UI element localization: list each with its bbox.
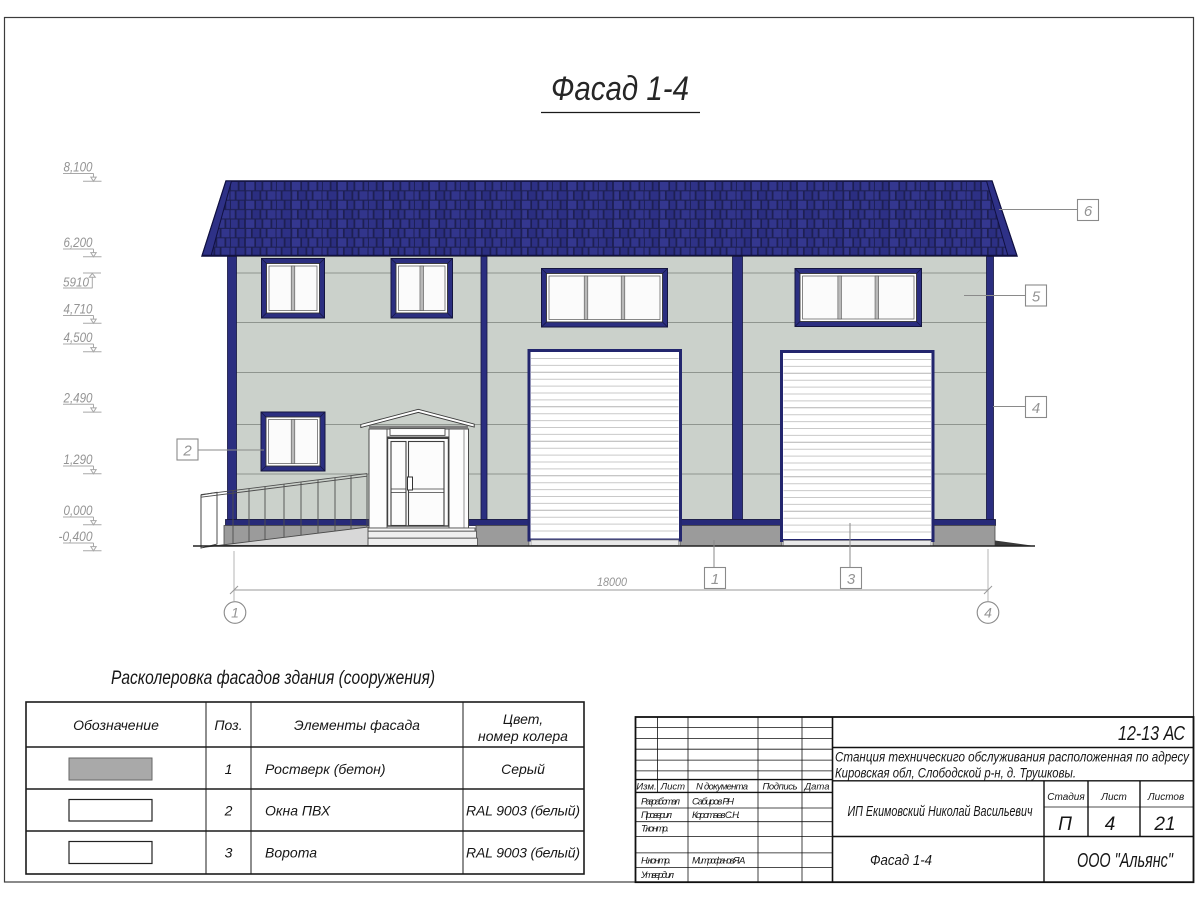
svg-text:Фасад 1-4: Фасад 1-4 bbox=[870, 853, 932, 869]
svg-text:0,000: 0,000 bbox=[64, 503, 93, 518]
svg-text:4: 4 bbox=[1032, 400, 1040, 417]
svg-text:Разработал: Разработал bbox=[641, 797, 681, 808]
svg-text:8,100: 8,100 bbox=[64, 160, 93, 175]
svg-text:номер колера: номер колера bbox=[478, 728, 568, 744]
svg-text:1: 1 bbox=[231, 605, 239, 621]
svg-text:2,490: 2,490 bbox=[63, 390, 93, 405]
svg-text:5: 5 bbox=[1032, 289, 1041, 306]
svg-text:Листов: Листов bbox=[1147, 792, 1184, 803]
svg-text:Подпись: Подпись bbox=[763, 782, 798, 793]
svg-text:5910: 5910 bbox=[63, 275, 90, 290]
svg-text:Сабиров Р.Н: Сабиров Р.Н bbox=[692, 797, 734, 808]
svg-text:Фасад 1-4: Фасад 1-4 bbox=[551, 70, 689, 108]
svg-text:18000: 18000 bbox=[597, 577, 628, 589]
svg-text:-0,400: -0,400 bbox=[59, 529, 93, 544]
svg-text:1: 1 bbox=[711, 571, 719, 588]
svg-text:RAL 9003 (белый): RAL 9003 (белый) bbox=[466, 803, 580, 819]
svg-text:6,200: 6,200 bbox=[64, 235, 93, 250]
svg-text:Поз.: Поз. bbox=[214, 717, 242, 733]
svg-text:4,500: 4,500 bbox=[64, 330, 93, 345]
svg-text:Митрофанов Я. А.: Митрофанов Я. А. bbox=[692, 856, 746, 867]
svg-text:Элементы фасада: Элементы фасада bbox=[294, 717, 420, 733]
svg-text:1,290: 1,290 bbox=[64, 452, 93, 467]
svg-text:6: 6 bbox=[1084, 203, 1093, 220]
svg-text:Ростверк (бетон): Ростверк (бетон) bbox=[265, 761, 386, 777]
svg-text:4: 4 bbox=[1105, 814, 1116, 835]
svg-text:Станция техническиго обслужива: Станция техническиго обслуживания распол… bbox=[835, 750, 1190, 765]
svg-text:Дата: Дата bbox=[803, 782, 829, 793]
svg-text:3: 3 bbox=[847, 571, 856, 588]
svg-text:4: 4 bbox=[984, 605, 992, 621]
svg-text:Ворота: Ворота bbox=[265, 845, 317, 861]
svg-text:21: 21 bbox=[1153, 814, 1175, 835]
svg-text:RAL 9003 (белый): RAL 9003 (белый) bbox=[466, 845, 580, 861]
svg-text:ООО "Альянс": ООО "Альянс" bbox=[1077, 850, 1174, 872]
svg-text:Кировская обл, Слободской р-н,: Кировская обл, Слободской р-н, д. Трушко… bbox=[835, 766, 1076, 781]
svg-text:Проверил: Проверил bbox=[641, 810, 673, 821]
svg-text:П: П bbox=[1058, 814, 1072, 835]
svg-text:Н.контр.: Н.контр. bbox=[641, 856, 671, 867]
svg-text:Т.контр.: Т.контр. bbox=[641, 824, 669, 835]
svg-text:Серый: Серый bbox=[501, 761, 545, 777]
svg-text:4,710: 4,710 bbox=[64, 302, 93, 317]
svg-text:Лист: Лист bbox=[660, 782, 686, 793]
svg-text:Изм.: Изм. bbox=[636, 782, 656, 793]
svg-text:2: 2 bbox=[182, 443, 192, 460]
svg-text:Расколеровка фасадов здания (с: Расколеровка фасадов здания (сооружения) bbox=[111, 668, 435, 689]
svg-text:2: 2 bbox=[224, 803, 233, 819]
svg-text:Утвердил: Утвердил bbox=[640, 870, 675, 881]
svg-text:Цвет,: Цвет, bbox=[503, 711, 543, 727]
svg-text:Коротаев С. Н.: Коротаев С. Н. bbox=[692, 810, 740, 821]
svg-text:3: 3 bbox=[225, 845, 233, 861]
svg-text:Окна ПВХ: Окна ПВХ bbox=[265, 803, 331, 819]
svg-text:Обозначение: Обозначение bbox=[73, 717, 159, 733]
svg-text:ИП Екимовский Николай Васильев: ИП Екимовский Николай Васильевич bbox=[848, 803, 1033, 820]
svg-text:Лист: Лист bbox=[1100, 792, 1127, 803]
svg-text:12-13 АС: 12-13 АС bbox=[1118, 723, 1185, 745]
svg-text:Стадия: Стадия bbox=[1047, 792, 1085, 803]
svg-text:N документа: N документа bbox=[696, 782, 748, 793]
svg-text:1: 1 bbox=[225, 761, 233, 777]
